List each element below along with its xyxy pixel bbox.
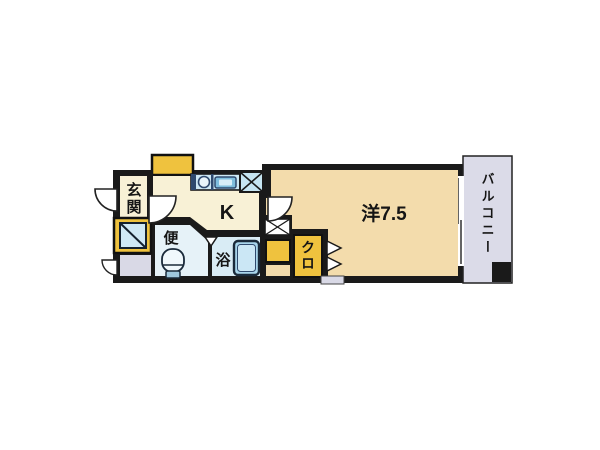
service-door-arc-icon [102, 260, 117, 275]
closet-label: クロ [300, 240, 316, 272]
floorplan-drawing: 玄関 K 便 浴 洋7.5 クロ バルコニー [0, 0, 600, 450]
entrance-label: 玄関 [125, 181, 142, 216]
refrigerator-space-icon [240, 172, 263, 192]
toilet-label: 便 [163, 229, 179, 247]
bathtub-icon [234, 241, 259, 275]
western-room-label: 洋7.5 [361, 202, 407, 225]
sink-icon [199, 177, 210, 188]
counter-edge [191, 174, 196, 190]
bath-label: 浴 [215, 251, 231, 269]
wall-entrance-divider [147, 170, 153, 197]
entrance-door-arc-icon [95, 189, 117, 211]
kitchen-counter [191, 174, 240, 190]
kitchen-label: K [220, 202, 235, 224]
alcove-box [120, 255, 151, 276]
floorplan-page: 玄関 K 便 浴 洋7.5 クロ バルコニー [0, 0, 600, 450]
storage-box [266, 240, 290, 262]
meter-box-icon [114, 218, 151, 253]
balcony-pillar [492, 262, 511, 282]
balcony-label: バルコニー [480, 172, 495, 257]
wall-above-door [263, 164, 271, 198]
pipe-space-box [152, 155, 193, 175]
bottom-tab [321, 276, 344, 284]
toilet-icon [162, 249, 184, 278]
